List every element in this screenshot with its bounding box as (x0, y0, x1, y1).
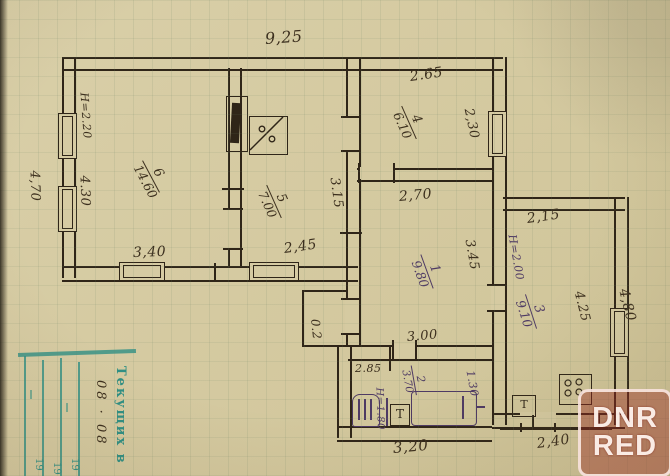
room1-label: 1 9.80 (407, 250, 447, 294)
window-icon (58, 186, 77, 232)
dim-left-inner: 4.30 (77, 175, 93, 206)
room5-label: 5 7.00 (253, 179, 294, 224)
wall-room3-top (503, 197, 625, 211)
room2-nook-partition (386, 398, 388, 426)
dim-porch-bottom: 2,40 (536, 431, 571, 451)
porch-tick (532, 415, 534, 430)
stamp-dash (66, 403, 68, 412)
dim-room1-left: 3.45 (462, 238, 482, 271)
registration-stamp: Текущих в 08 · 08 19 19 19 (0, 345, 150, 476)
measure-tick (214, 263, 216, 281)
door-jamb-tick (341, 298, 361, 300)
dim-room1-top: 2,70 (398, 186, 432, 205)
dim-left-outer: 4,70 (27, 170, 43, 201)
wall-leftblock-bottom (62, 266, 358, 282)
door-jamb-tick (487, 284, 507, 286)
step-left-line (302, 290, 304, 347)
window-icon (58, 113, 77, 159)
flue-icon (226, 96, 248, 152)
dim-room2-height: H=1.80 (374, 387, 386, 430)
door-room1-room3 (491, 286, 504, 312)
stamp-title: Текущих в (113, 366, 128, 465)
watermark-line1: DNR (592, 405, 658, 433)
door-jamb-tick (358, 163, 360, 183)
step-top-line (302, 290, 348, 292)
door-jamb-tick (223, 248, 243, 250)
window-icon (249, 262, 299, 281)
room3-label: 3 9.10 (512, 290, 551, 333)
door-jamb-tick (341, 150, 361, 152)
step-bottom-line (302, 345, 348, 347)
door-room1-room2 (394, 344, 415, 358)
door-room5-room4 (345, 118, 358, 152)
window-icon (119, 262, 165, 281)
door-jamb-tick (341, 333, 361, 335)
measure-tick (340, 232, 362, 234)
door-jamb-tick (223, 208, 243, 210)
stamp-year-mark: 19 (33, 458, 44, 471)
door-jamb-tick (487, 310, 507, 312)
door-jamb-tick (341, 116, 361, 118)
scan-edge-shadow (0, 0, 8, 476)
washstand-icon: T (512, 395, 536, 417)
dim-room6-bottom: 3,40 (133, 244, 167, 261)
dim-room3-right-inner: 4.25 (571, 290, 593, 324)
door-corridor-step (345, 300, 358, 335)
heating-stove-icon (249, 116, 288, 155)
dim-room5-bottom: 2,45 (283, 236, 318, 256)
dim-room1-bottom: 3.00 (406, 327, 438, 345)
door-jamb-tick (392, 340, 394, 360)
dnr-red-watermark: DNR RED (578, 389, 670, 476)
dim-step: 0.2 (308, 318, 324, 340)
dim-room4-right: 2,30 (461, 107, 482, 140)
door-jamb-tick (393, 163, 395, 183)
small-stove-icon: T (390, 404, 410, 426)
stamp-handwritten-note: 08 · 08 (93, 380, 108, 446)
dim-room5-right: 3.15 (327, 176, 346, 209)
floor-plan-sheet: T T 9,25 4,70 4.30 H=2.20 3,40 2,45 3.15… (0, 0, 670, 476)
measure-tick (389, 347, 391, 371)
watermark-line2: RED (593, 433, 657, 461)
stamp-year-mark: 19 (51, 462, 62, 475)
stamp-year-mark: 19 (69, 458, 80, 471)
room6-label: 6 14.60 (130, 154, 173, 199)
dim-room3-top: 2,15 (526, 206, 561, 226)
dim-room3-height: H=2.00 (506, 233, 527, 281)
stamp-dash (30, 390, 32, 399)
room4-label: 4 6.10 (388, 100, 429, 145)
stamp-rule (60, 358, 62, 476)
dim-room4-top: 2.65 (409, 64, 444, 84)
dim-room2-left: 2.85 (355, 362, 382, 375)
door-room4-room1 (360, 167, 393, 179)
dim-room2-bottom: 3,20 (392, 436, 429, 457)
dim-room6-height: H=2.20 (78, 92, 94, 139)
dim-top-width: 9,25 (264, 26, 303, 48)
window-icon (488, 111, 507, 157)
stamp-border-line (18, 349, 136, 357)
measure-tick (222, 188, 244, 190)
wall-room1-bottom (348, 345, 492, 361)
wall-room2-left (337, 345, 352, 438)
door-room6-room5 (227, 210, 239, 250)
stamp-rule (24, 356, 26, 476)
wall-left (62, 57, 76, 278)
room2-label: 2 3.70 (399, 363, 428, 397)
